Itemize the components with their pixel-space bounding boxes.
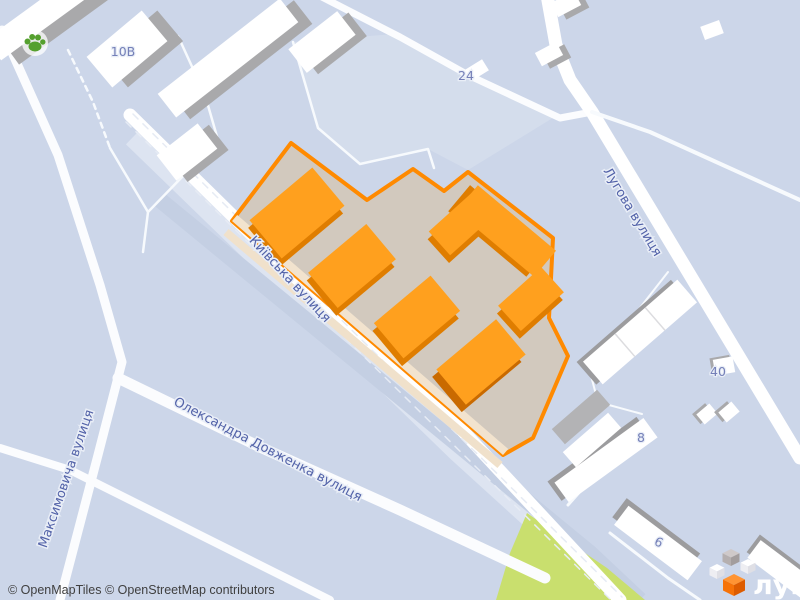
lun-logo-text: лун	[753, 570, 800, 600]
house-number-24: 24	[458, 68, 474, 83]
map-canvas[interactable]: Київська вулиця Лугова вулиця Олександра…	[0, 0, 800, 600]
paw-icon[interactable]	[22, 30, 48, 56]
house-number-10v: 10В	[111, 44, 135, 59]
map-viewport[interactable]: Київська вулиця Лугова вулиця Олександра…	[0, 0, 800, 600]
house-number-8: 8	[637, 430, 645, 445]
map-attribution[interactable]: © OpenMapTiles © OpenStreetMap contribut…	[8, 583, 275, 597]
house-number-40: 40	[710, 364, 726, 379]
